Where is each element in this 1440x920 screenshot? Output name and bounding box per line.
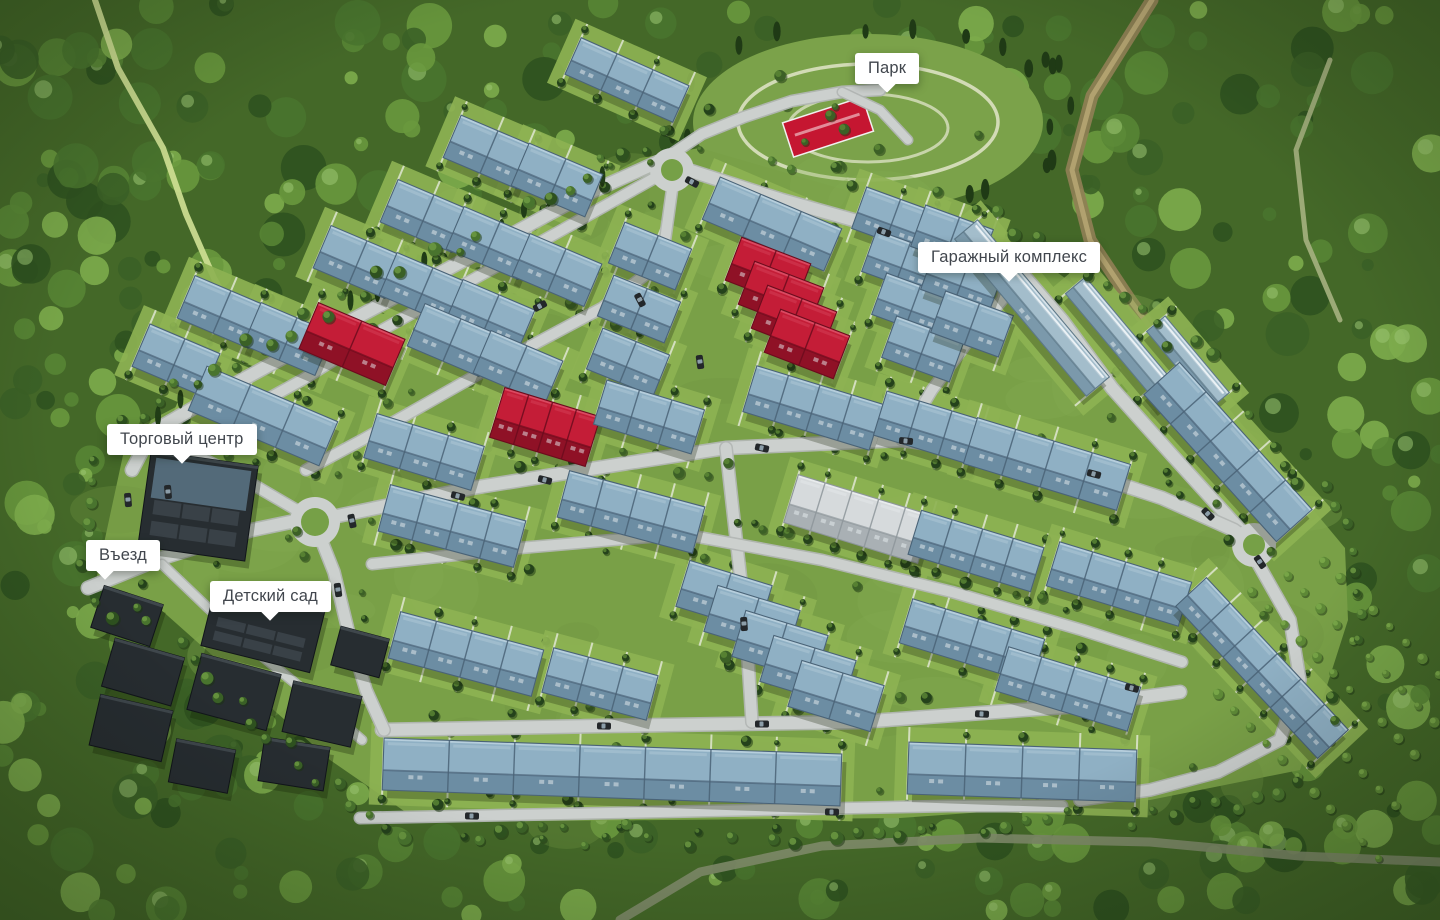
- label-park-text: Парк: [868, 59, 906, 77]
- label-entrance[interactable]: Въезд: [86, 540, 160, 571]
- car: [164, 485, 172, 500]
- car: [465, 812, 479, 819]
- label-garage-complex[interactable]: Гаражный комплекс: [918, 242, 1100, 273]
- car: [975, 710, 989, 718]
- label-shopping-center-text: Торговый центр: [120, 430, 244, 448]
- label-kindergarten-text: Детский сад: [223, 587, 318, 605]
- car: [740, 617, 748, 631]
- building-blue-row[interactable]: [907, 742, 1142, 810]
- car: [597, 722, 611, 729]
- car: [124, 493, 132, 508]
- masterplan-scene: [0, 0, 1440, 920]
- label-park[interactable]: Парк: [855, 53, 919, 84]
- car: [755, 721, 769, 728]
- label-garage-complex-text: Гаражный комплекс: [931, 248, 1087, 266]
- car: [899, 437, 914, 445]
- label-shopping-center[interactable]: Торговый центр: [107, 424, 257, 455]
- label-entrance-text: Въезд: [99, 546, 147, 564]
- masterplan: Парк Гаражный комплекс Торговый центр Въ…: [0, 0, 1440, 920]
- label-kindergarten[interactable]: Детский сад: [210, 581, 331, 612]
- car: [825, 808, 839, 815]
